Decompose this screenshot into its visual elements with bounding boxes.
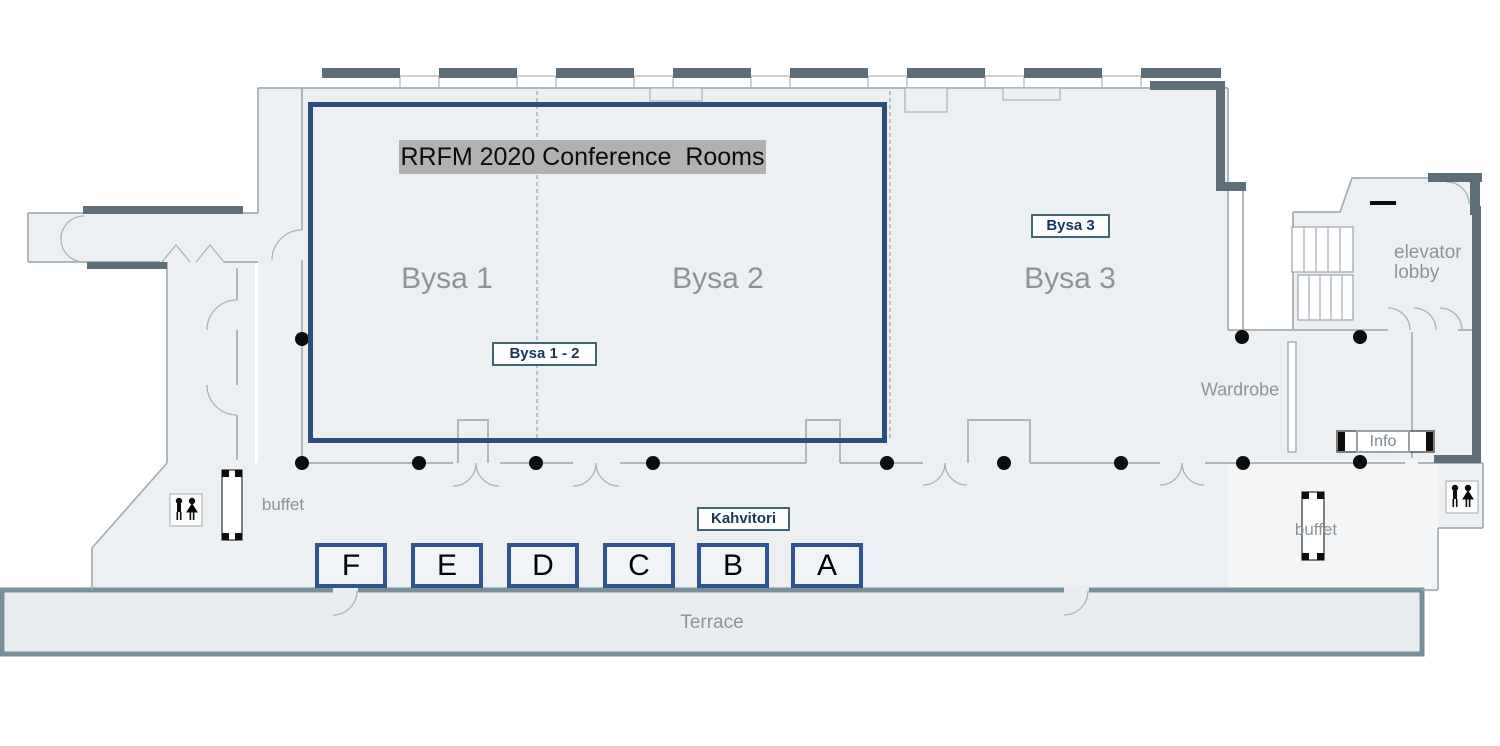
tag-bysa-1-2: Bysa 1 - 2 (492, 342, 597, 366)
area-label-terrace: Terrace (680, 612, 743, 634)
restroom-icon (170, 494, 202, 526)
tag-bysa-3: Bysa 3 (1031, 214, 1110, 238)
elevator-lobby-line1: elevator (1394, 243, 1462, 263)
tag-kahvitori: Kahvitori (697, 507, 790, 531)
page-title: RRFM 2020 Conference Rooms (399, 140, 766, 174)
area-label-elevator-lobby: elevator lobby (1394, 243, 1462, 283)
section-box-a: A (791, 543, 863, 588)
section-box-f: F (315, 543, 387, 588)
area-label-wardrobe: Wardrobe (1201, 380, 1279, 401)
area-label-buffet-right: buffet (1295, 520, 1337, 540)
elevator-lobby-line2: lobby (1394, 263, 1462, 283)
room-label-bysa1: Bysa 1 (401, 262, 493, 296)
room-label-bysa3: Bysa 3 (1024, 262, 1116, 296)
restroom-icon (1446, 481, 1478, 513)
floor-plan: RRFM 2020 Conference Rooms Bysa 1 Bysa 2… (0, 0, 1500, 746)
room-label-bysa2: Bysa 2 (672, 262, 764, 296)
section-box-c: C (603, 543, 675, 588)
section-box-e: E (411, 543, 483, 588)
section-box-d: D (507, 543, 579, 588)
info-desk-label: Info (1356, 430, 1410, 453)
section-box-b: B (697, 543, 769, 588)
buffet-counter-left (222, 470, 242, 540)
wardrobe-counter (1288, 342, 1296, 452)
area-label-buffet-left: buffet (262, 495, 304, 515)
